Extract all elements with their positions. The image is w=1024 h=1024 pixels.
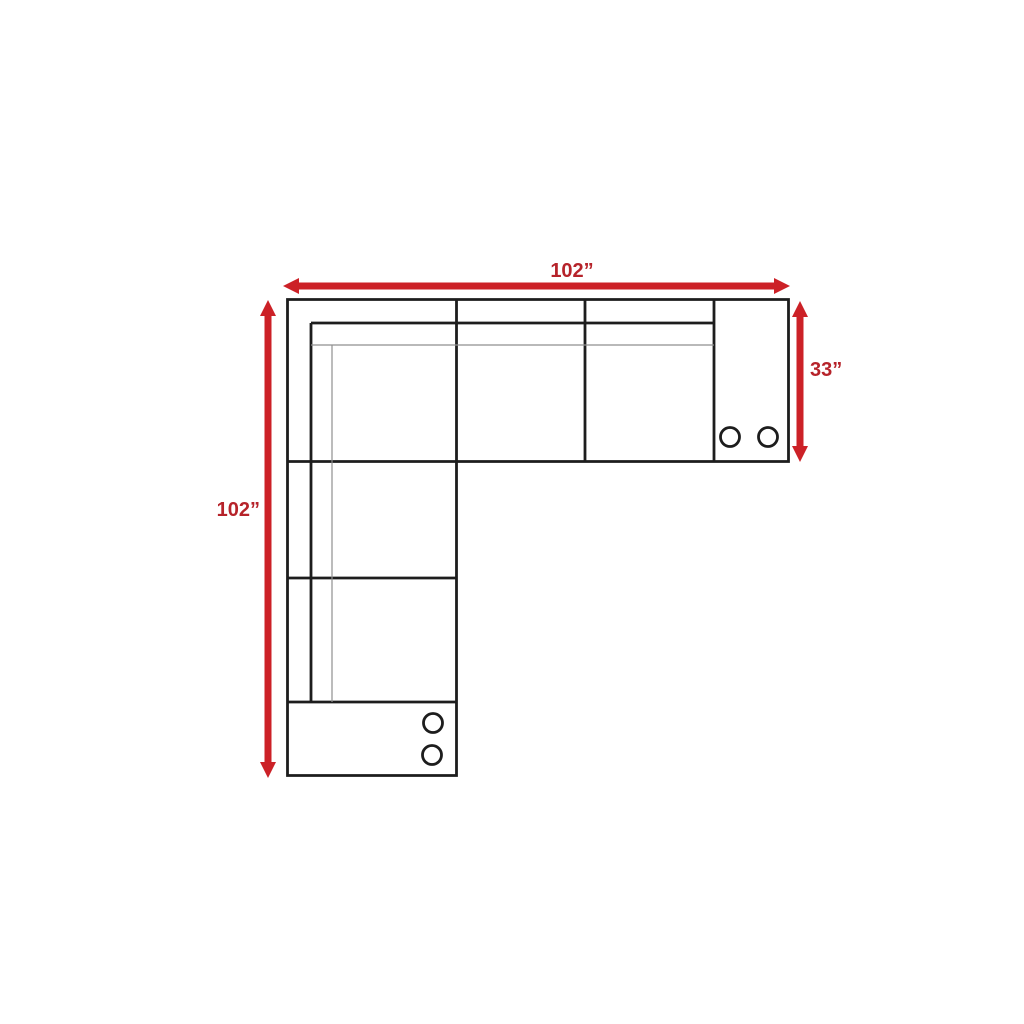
right-arm-depth-dimension-arrow-icon xyxy=(792,301,808,462)
right-console-cupholder-icon-1 xyxy=(721,428,740,447)
top-width-dimension-arrow-icon xyxy=(283,278,790,294)
sofa-dimension-diagram: 102” 102” 33” xyxy=(0,0,1024,1024)
right-console-cupholder-icon-2 xyxy=(759,428,778,447)
sofa-outline-group xyxy=(288,300,789,776)
sofa-plan-drawing: 102” 102” 33” xyxy=(0,0,1024,1024)
left-depth-label: 102” xyxy=(217,499,260,521)
bottom-console-cupholder-icon-2 xyxy=(423,746,442,765)
left-depth-dimension-arrow-icon xyxy=(260,300,276,778)
top-width-label: 102” xyxy=(550,260,593,282)
right-arm-depth-label: 33” xyxy=(810,359,842,381)
bottom-console-cupholder-icon-1 xyxy=(424,714,443,733)
